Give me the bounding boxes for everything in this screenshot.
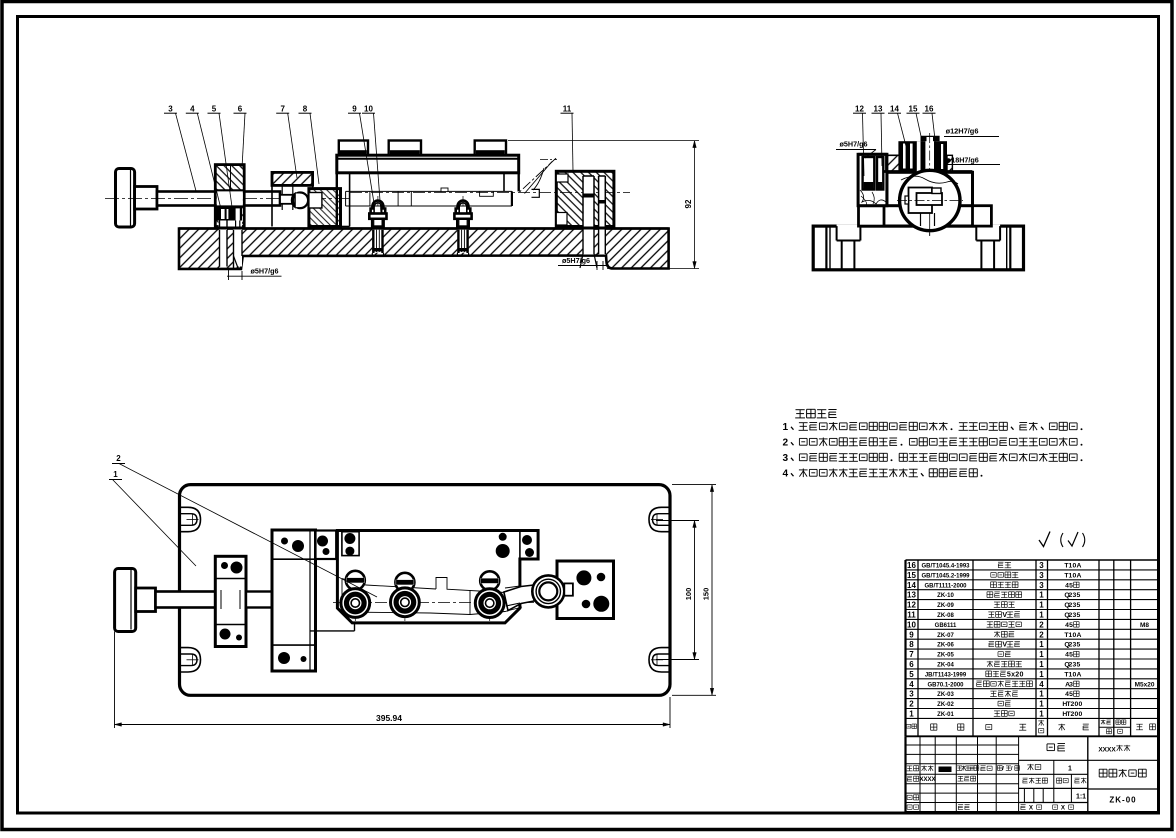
- svg-text:3: 3: [783, 453, 789, 464]
- svg-text:ZK-09: ZK-09: [937, 603, 954, 609]
- svg-text:XXXX: XXXX: [919, 777, 935, 783]
- svg-text:3: 3: [1069, 681, 1073, 688]
- svg-text:1: 1: [1039, 660, 1044, 669]
- svg-text:M5x20: M5x20: [1135, 681, 1155, 688]
- svg-text:ø5H7/g6: ø5H7/g6: [562, 256, 590, 265]
- svg-text:2: 2: [1039, 630, 1044, 639]
- svg-text:395.94: 395.94: [376, 713, 402, 723]
- svg-text:4: 4: [190, 105, 195, 114]
- svg-text:GB/T1111-2000: GB/T1111-2000: [924, 583, 967, 589]
- svg-text:ø12H7/g6: ø12H7/g6: [946, 127, 979, 136]
- svg-text:A: A: [1077, 671, 1082, 678]
- svg-text:GB70.1-2000: GB70.1-2000: [927, 682, 964, 688]
- svg-text:0: 0: [1079, 711, 1083, 718]
- svg-text:2: 2: [1039, 620, 1044, 629]
- svg-text:16: 16: [925, 105, 934, 114]
- svg-text:12: 12: [855, 105, 864, 114]
- svg-text:2: 2: [783, 437, 789, 448]
- svg-text:ø5H7/g6: ø5H7/g6: [840, 140, 868, 149]
- svg-text:5: 5: [212, 105, 217, 114]
- svg-text:14: 14: [907, 581, 916, 590]
- svg-text:ZK-08: ZK-08: [937, 613, 954, 619]
- svg-text:XXXX: XXXX: [1098, 747, 1116, 754]
- svg-text:11: 11: [563, 105, 572, 114]
- svg-text:8: 8: [303, 105, 308, 114]
- svg-text:1: 1: [1039, 640, 1044, 649]
- svg-text:12: 12: [907, 601, 916, 610]
- svg-text:4: 4: [909, 680, 914, 689]
- svg-text:1: 1: [1039, 670, 1044, 679]
- svg-text:5: 5: [1069, 691, 1073, 698]
- svg-text:92: 92: [684, 199, 693, 208]
- svg-text:3: 3: [909, 690, 914, 699]
- svg-text:5: 5: [1069, 652, 1073, 659]
- svg-text:1: 1: [1039, 601, 1044, 610]
- svg-text:11: 11: [907, 610, 916, 619]
- svg-text:3: 3: [1039, 581, 1044, 590]
- svg-text:1: 1: [783, 422, 789, 433]
- svg-text:1:1: 1:1: [1076, 794, 1086, 801]
- svg-text:1: 1: [1039, 709, 1044, 718]
- svg-text:A: A: [1077, 563, 1082, 570]
- svg-text:15: 15: [907, 571, 916, 580]
- svg-text:2: 2: [116, 454, 121, 463]
- svg-text:ZK-04: ZK-04: [937, 662, 954, 668]
- svg-text:5: 5: [1069, 582, 1073, 589]
- svg-text:ZK-02: ZK-02: [937, 702, 954, 708]
- svg-text:5: 5: [1069, 622, 1073, 629]
- svg-text:GB6111: GB6111: [935, 623, 957, 629]
- svg-text:V: V: [1002, 611, 1007, 619]
- svg-text:4: 4: [1039, 680, 1044, 689]
- svg-text:5: 5: [1077, 612, 1081, 619]
- svg-text:3: 3: [1039, 571, 1044, 580]
- svg-text:1: 1: [1039, 700, 1044, 709]
- svg-text:1: 1: [113, 470, 118, 479]
- svg-text:10: 10: [907, 620, 916, 629]
- svg-text:5: 5: [1077, 602, 1081, 609]
- svg-text:4: 4: [783, 468, 789, 479]
- svg-text:3: 3: [168, 105, 173, 114]
- svg-text:1: 1: [1068, 766, 1072, 773]
- svg-text:A: A: [1077, 632, 1082, 639]
- svg-text:JB/T1143-1999: JB/T1143-1999: [925, 672, 967, 678]
- svg-text:9: 9: [909, 630, 914, 639]
- svg-text:ZK-03: ZK-03: [937, 692, 954, 698]
- svg-text:ZK-01: ZK-01: [937, 712, 954, 718]
- svg-text:18H7/g6: 18H7/g6: [951, 156, 979, 165]
- svg-text:8: 8: [909, 640, 914, 649]
- svg-text:150: 150: [702, 588, 711, 601]
- svg-text:1: 1: [1039, 690, 1044, 699]
- svg-text:2: 2: [909, 700, 914, 709]
- svg-text:0: 0: [1020, 670, 1024, 678]
- svg-text:6: 6: [909, 660, 914, 669]
- svg-text:13: 13: [907, 591, 916, 600]
- svg-text:10: 10: [364, 105, 373, 114]
- svg-text:ZK-06: ZK-06: [937, 643, 954, 649]
- svg-text:9: 9: [352, 105, 357, 114]
- svg-text:GB/T1045.2-1999: GB/T1045.2-1999: [921, 573, 970, 579]
- svg-text:100: 100: [684, 588, 693, 601]
- svg-text:5: 5: [1077, 662, 1081, 669]
- svg-text:3: 3: [1039, 561, 1044, 570]
- svg-text:ø5H7/g6: ø5H7/g6: [251, 267, 279, 276]
- svg-text:7: 7: [280, 105, 285, 114]
- svg-text:V: V: [1002, 641, 1007, 649]
- svg-text:ZK-10: ZK-10: [937, 593, 954, 599]
- svg-text:1: 1: [1039, 650, 1044, 659]
- svg-text:15: 15: [909, 105, 918, 114]
- svg-text:5: 5: [1077, 592, 1081, 599]
- svg-text:6: 6: [238, 105, 243, 114]
- svg-text:ZK-05: ZK-05: [937, 653, 954, 659]
- svg-text:14: 14: [890, 105, 899, 114]
- svg-text:16: 16: [907, 561, 916, 570]
- svg-text:5: 5: [909, 670, 914, 679]
- svg-text:1: 1: [1039, 610, 1044, 619]
- svg-text:1: 1: [1039, 591, 1044, 600]
- svg-text:5: 5: [1077, 642, 1081, 649]
- svg-text:1: 1: [909, 709, 914, 718]
- svg-text:0: 0: [1079, 701, 1083, 708]
- svg-text:7: 7: [909, 650, 914, 659]
- svg-text:ZK-00: ZK-00: [1109, 796, 1136, 805]
- svg-text:GB/T1045.4-1993: GB/T1045.4-1993: [921, 563, 970, 569]
- svg-text:13: 13: [874, 105, 883, 114]
- svg-text:M8: M8: [1140, 622, 1149, 629]
- svg-text:ZK-07: ZK-07: [937, 633, 954, 639]
- svg-text:A: A: [1077, 572, 1082, 579]
